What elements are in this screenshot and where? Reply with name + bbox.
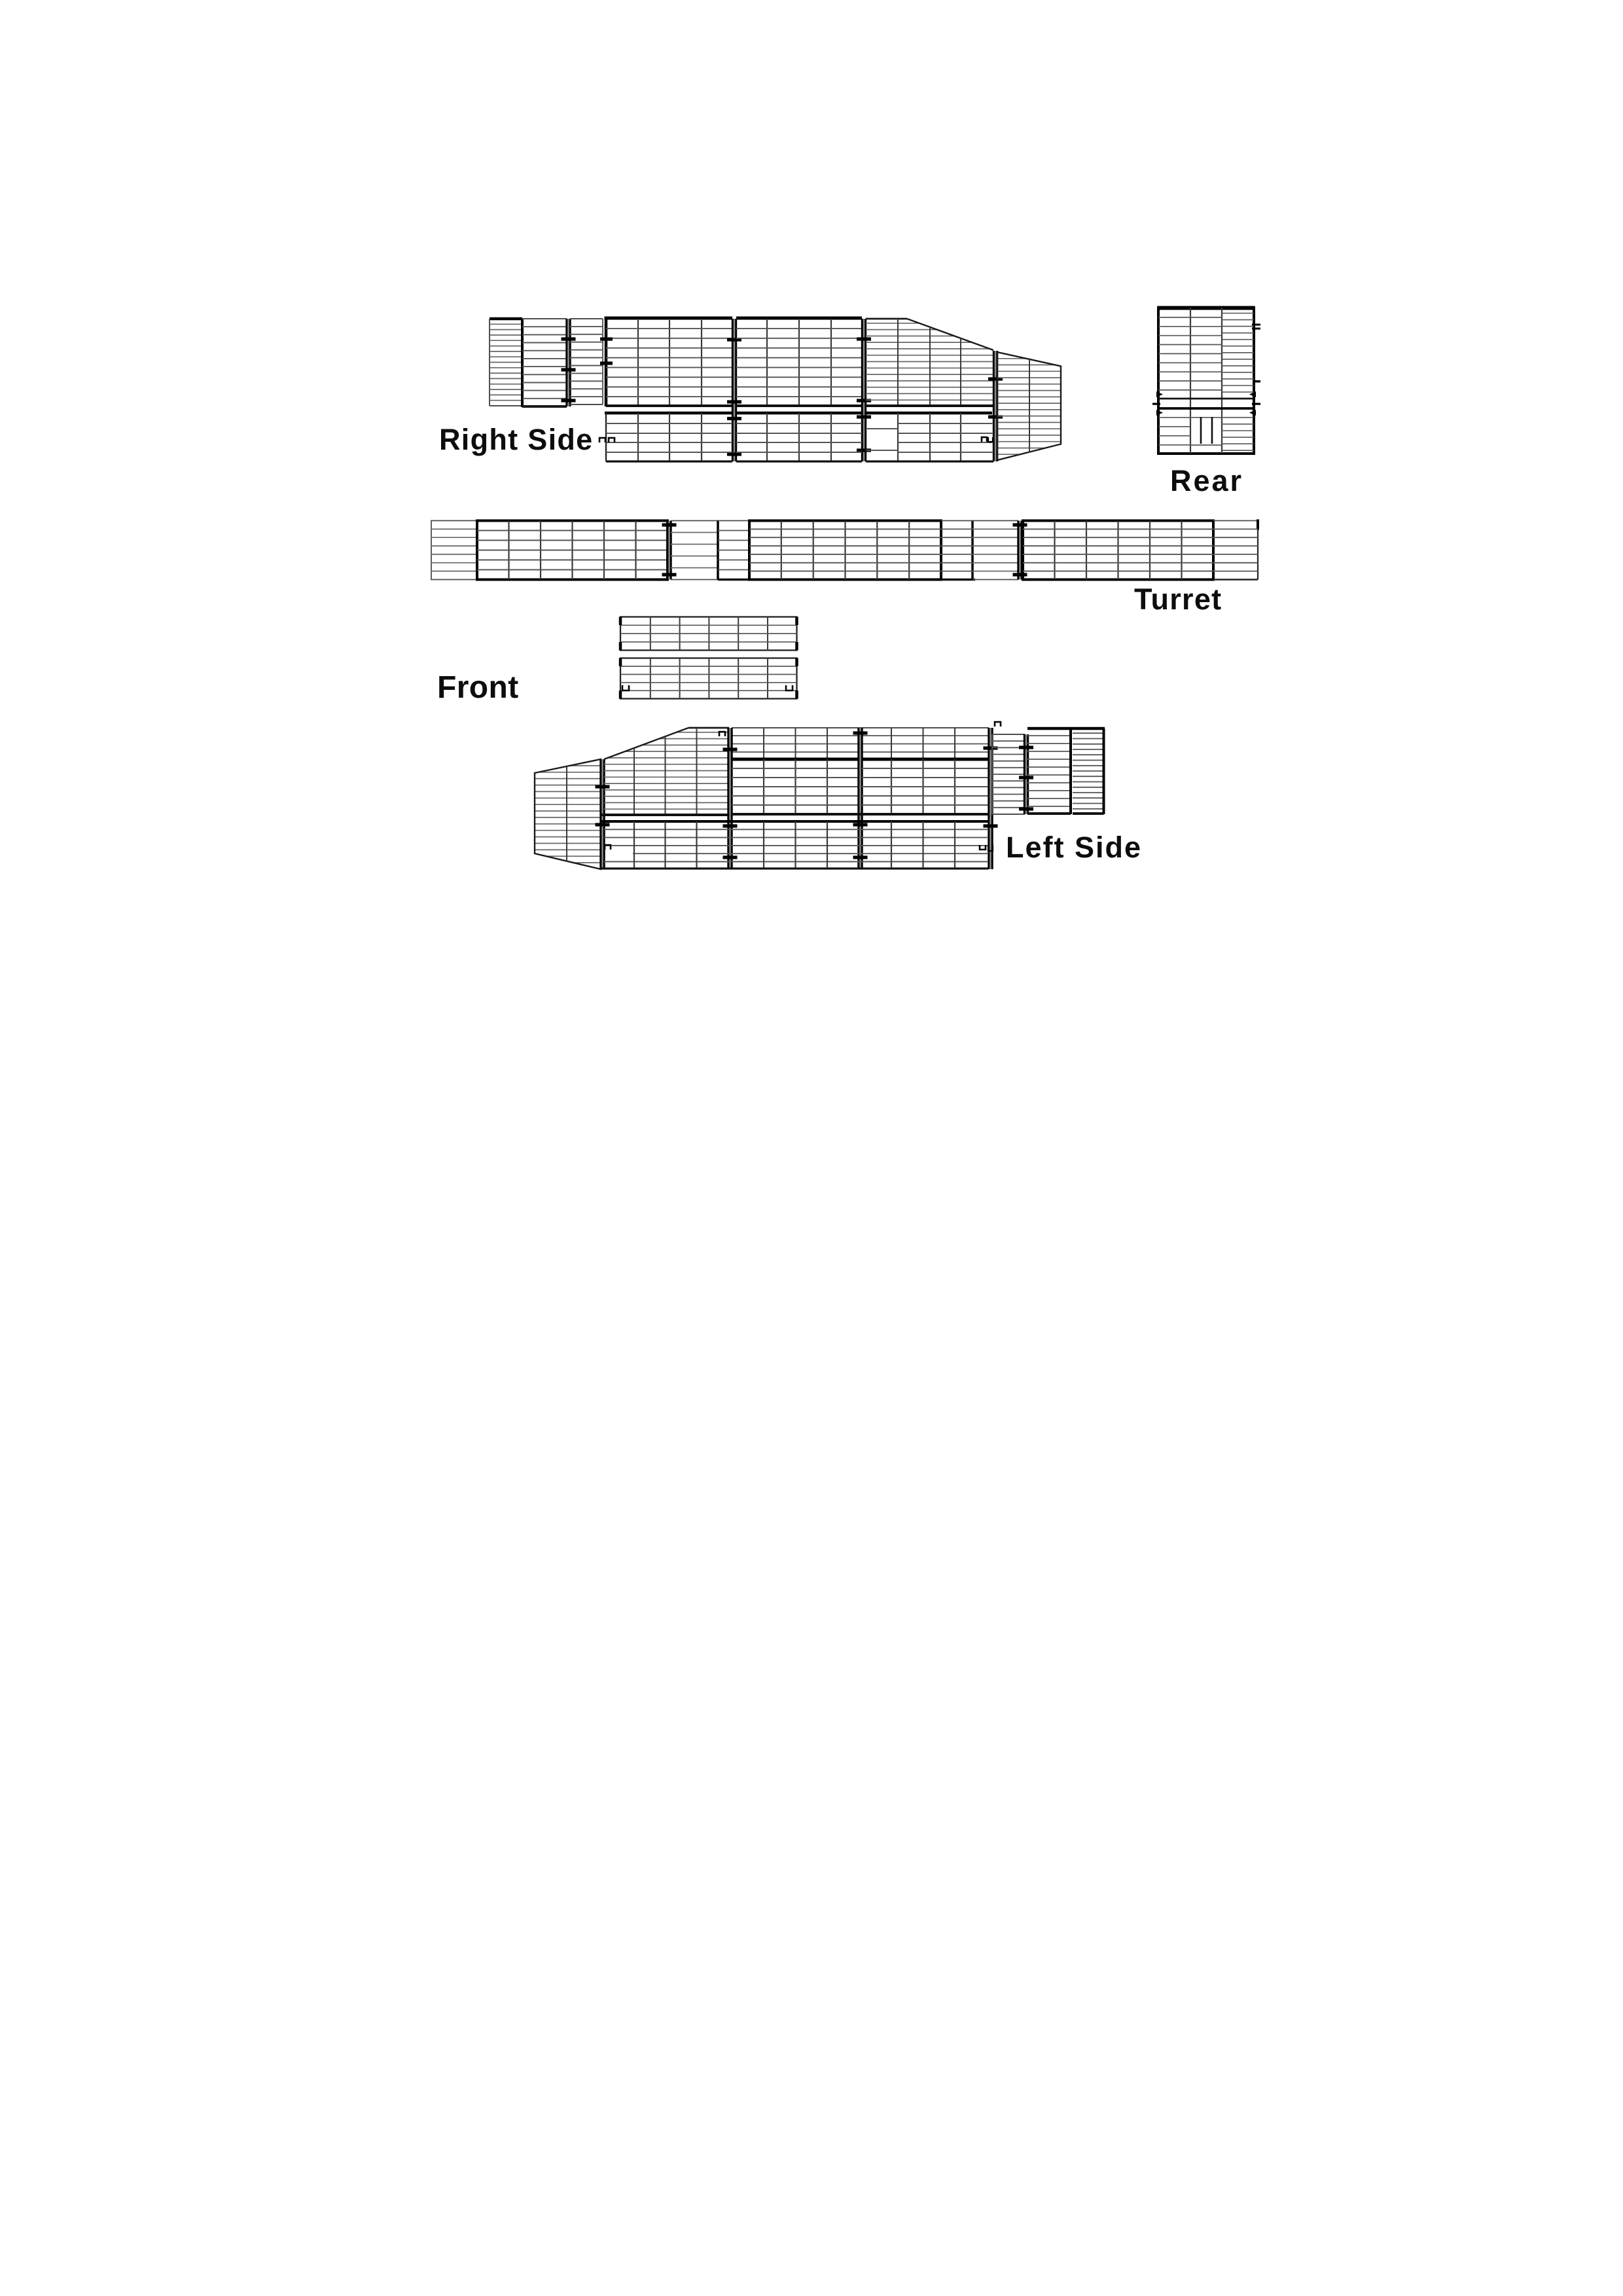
svg-text:Right Side: Right Side <box>439 423 594 456</box>
svg-text:Front: Front <box>437 670 519 705</box>
svg-text:Turret: Turret <box>1134 583 1222 616</box>
svg-text:Rear: Rear <box>1170 464 1243 497</box>
svg-text:Left Side: Left Side <box>1006 831 1142 864</box>
